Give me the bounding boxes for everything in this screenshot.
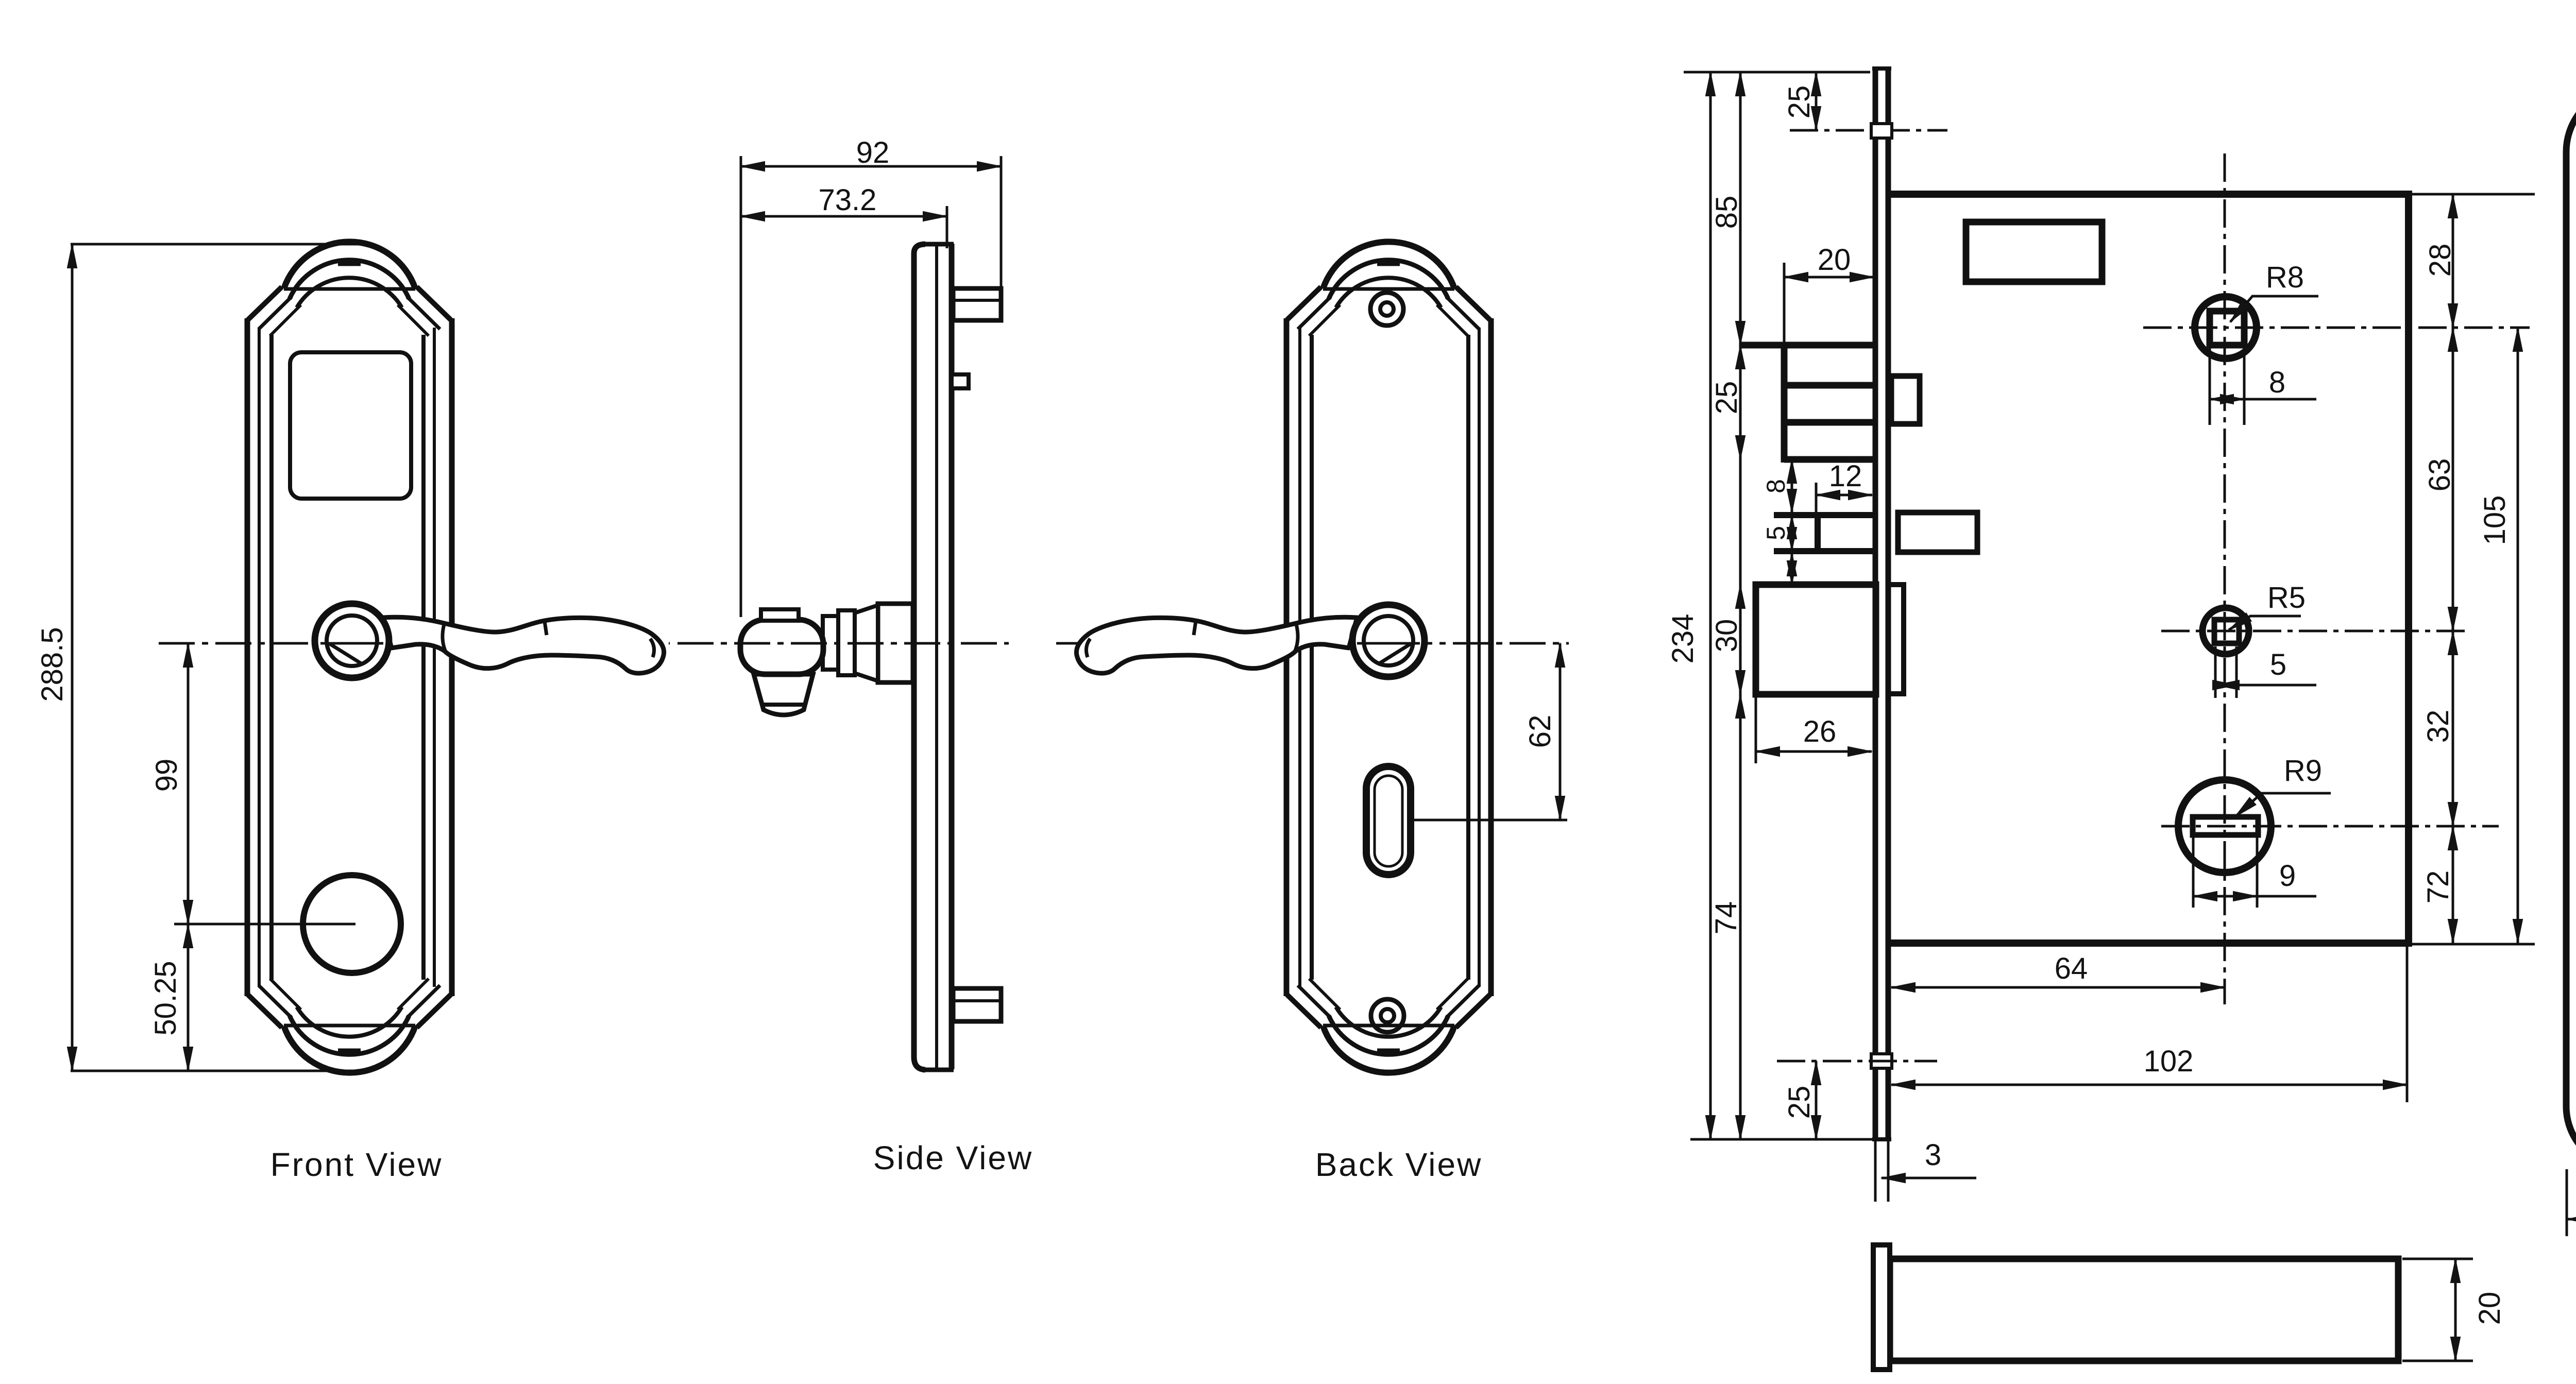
- svg-text:20: 20: [2473, 1292, 2506, 1325]
- svg-text:8: 8: [2269, 366, 2285, 399]
- svg-text:30: 30: [1710, 619, 1743, 653]
- svg-text:32: 32: [2421, 710, 2455, 743]
- svg-text:102: 102: [2144, 1045, 2194, 1078]
- svg-text:25: 25: [1710, 381, 1743, 415]
- svg-text:105: 105: [2478, 495, 2512, 545]
- svg-text:63: 63: [2423, 458, 2456, 492]
- svg-text:Back View: Back View: [1315, 1146, 1483, 1183]
- svg-text:99: 99: [150, 759, 183, 792]
- svg-text:9: 9: [2279, 859, 2296, 893]
- svg-text:92: 92: [856, 136, 890, 169]
- svg-text:8: 8: [1761, 479, 1790, 493]
- svg-text:12: 12: [1829, 459, 1862, 493]
- svg-text:74: 74: [1709, 901, 1743, 935]
- svg-text:R5: R5: [2267, 581, 2306, 614]
- svg-text:20: 20: [1818, 243, 1851, 277]
- svg-text:25: 25: [1783, 86, 1816, 119]
- svg-text:26: 26: [1803, 715, 1837, 748]
- svg-text:R9: R9: [2284, 754, 2322, 788]
- svg-text:50.25: 50.25: [149, 961, 182, 1035]
- svg-text:5: 5: [2270, 648, 2286, 681]
- svg-text:R8: R8: [2266, 261, 2304, 294]
- svg-text:28: 28: [2424, 244, 2457, 277]
- svg-text:288.5: 288.5: [36, 627, 69, 702]
- svg-text:62: 62: [1523, 715, 1557, 748]
- svg-text:Side View: Side View: [873, 1139, 1033, 1176]
- svg-text:Front View: Front View: [270, 1146, 443, 1183]
- svg-text:72: 72: [2421, 870, 2455, 904]
- svg-text:3: 3: [1925, 1138, 1941, 1172]
- svg-text:234: 234: [1666, 614, 1700, 664]
- svg-text:73.2: 73.2: [819, 183, 877, 217]
- svg-text:25: 25: [1783, 1086, 1816, 1119]
- svg-text:64: 64: [2055, 952, 2088, 985]
- svg-text:85: 85: [1710, 196, 1743, 229]
- svg-text:5: 5: [1761, 526, 1790, 540]
